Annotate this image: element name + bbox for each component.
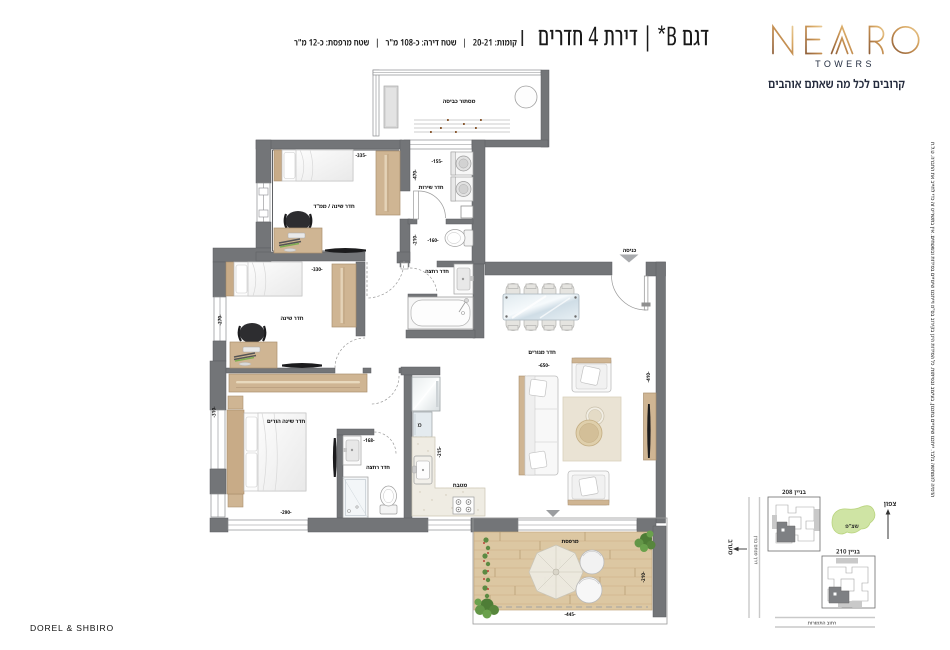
svg-text:DOREL & SHBIRO: DOREL & SHBIRO: [30, 623, 114, 633]
svg-text:TOWERS: TOWERS: [815, 59, 875, 69]
